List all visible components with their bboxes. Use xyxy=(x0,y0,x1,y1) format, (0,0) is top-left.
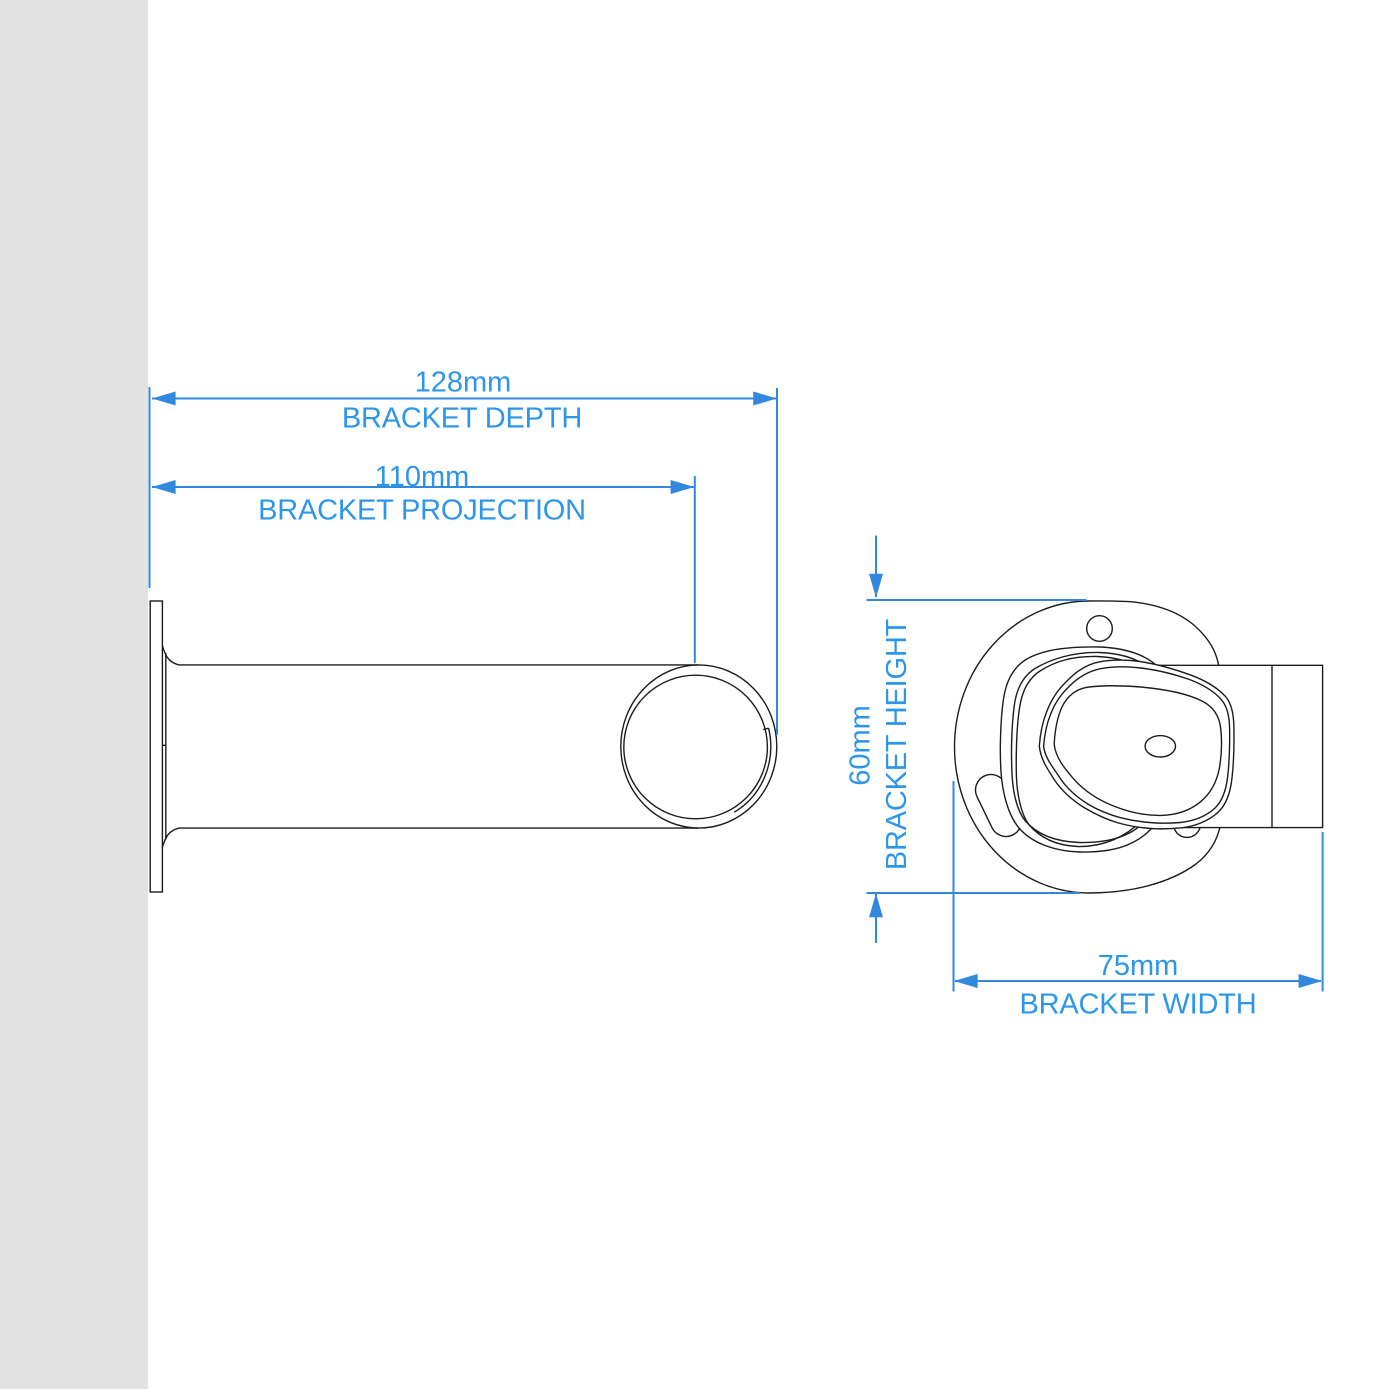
svg-text:60mm: 60mm xyxy=(845,705,877,786)
svg-text:110mm: 110mm xyxy=(375,461,470,493)
svg-text:BRACKET WIDTH: BRACKET WIDTH xyxy=(1020,989,1257,1021)
svg-text:75mm: 75mm xyxy=(1098,950,1179,982)
svg-text:BRACKET DEPTH: BRACKET DEPTH xyxy=(342,403,582,435)
svg-text:BRACKET HEIGHT: BRACKET HEIGHT xyxy=(881,618,913,870)
svg-text:BRACKET PROJECTION: BRACKET PROJECTION xyxy=(258,495,586,527)
svg-text:128mm: 128mm xyxy=(415,367,512,399)
